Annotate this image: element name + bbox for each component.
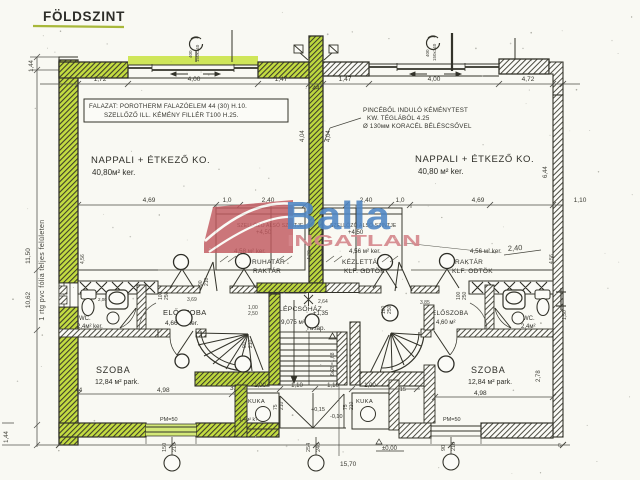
svg-text:44: 44 [75, 387, 83, 394]
svg-text:90: 90 [441, 445, 447, 451]
svg-text:4,00: 4,00 [428, 76, 441, 83]
svg-text:1 rtg pvc fólia teljes felület: 1 rtg pvc fólia teljes felületen [39, 219, 46, 320]
svg-text:210: 210 [279, 401, 285, 410]
svg-text:150x140: 150x140 [432, 43, 437, 61]
svg-text:1,0: 1,0 [395, 197, 404, 204]
svg-text:6: 6 [558, 443, 561, 449]
svg-text:400: 400 [188, 50, 193, 58]
svg-text:4,98: 4,98 [157, 387, 170, 394]
svg-text:2,78: 2,78 [536, 370, 542, 382]
svg-text:KLF. ODTÖK: KLF. ODTÖK [452, 267, 493, 275]
svg-text:4,60 м²: 4,60 м² [436, 320, 455, 326]
svg-text:NAPPALI + ÉTKEZŐ KO.: NAPPALI + ÉTKEZŐ KO. [91, 155, 210, 166]
svg-text:KUKA: KUKA [356, 399, 373, 405]
svg-text:FÖLDSZINT: FÖLDSZINT [43, 9, 125, 24]
svg-text:2,50: 2,50 [248, 311, 258, 317]
svg-text:1,47: 1,47 [339, 76, 352, 83]
svg-text:1,4м² k?: 1,4м² k? [239, 417, 258, 423]
svg-text:12,84 м² park.: 12,84 м² park. [468, 379, 512, 386]
svg-text:250: 250 [164, 291, 170, 300]
svg-text:210: 210 [248, 339, 254, 348]
svg-text:4,30: 4,30 [307, 250, 313, 260]
svg-text:1,10: 1,10 [327, 383, 339, 389]
svg-text:PM=50: PM=50 [160, 417, 178, 423]
svg-text:1,10: 1,10 [574, 197, 587, 204]
svg-text:2,40: 2,40 [508, 243, 523, 253]
svg-text:INGATLAN: INGATLAN [287, 233, 421, 250]
svg-text:Ø 130мм KORACÉL BÉLÉSCSŐVEL: Ø 130мм KORACÉL BÉLÉSCSŐVEL [363, 123, 472, 130]
svg-text:PM=50: PM=50 [443, 417, 461, 423]
svg-text:KW. TÉGLÁBÓL 4.25: KW. TÉGLÁBÓL 4.25 [367, 115, 430, 122]
svg-text:4,72: 4,72 [522, 76, 535, 83]
svg-text:SZOBA: SZOBA [471, 365, 506, 375]
svg-text:SZELLŐZŐ ILL. KÉMÉNY FILLÉR T1: SZELLŐZŐ ILL. KÉMÉNY FILLÉR T100 H.25. [104, 112, 239, 119]
svg-text:1,00: 1,00 [254, 383, 266, 389]
svg-text:40,80м² ker.: 40,80м² ker. [92, 168, 135, 177]
svg-text:WC.: WC. [79, 316, 91, 322]
svg-text:6,44: 6,44 [543, 166, 549, 178]
svg-text:11,50: 11,50 [25, 248, 32, 264]
svg-text:RUHATÁR: RUHATÁR [252, 257, 285, 266]
svg-text:4,00: 4,00 [188, 76, 201, 83]
svg-text:NAPPALI + ÉTKEZŐ KO.: NAPPALI + ÉTKEZŐ KO. [415, 154, 534, 165]
svg-text:RAKTÁR: RAKTÁR [253, 266, 281, 275]
svg-text:PINCÉBŐL INDULÓ KÉMÉNYTEST: PINCÉBŐL INDULÓ KÉMÉNYTEST [363, 107, 468, 114]
svg-text:4,56: 4,56 [80, 254, 86, 264]
svg-text:1,44: 1,44 [4, 431, 10, 443]
svg-text:4,56 м² ker.: 4,56 м² ker. [470, 248, 502, 255]
svg-text:150x140: 150x140 [195, 44, 200, 62]
svg-text:+0,15: +0,15 [311, 407, 325, 413]
svg-text:KÉZLETTÁR: KÉZLETTÁR [342, 257, 382, 266]
svg-text:15,70: 15,70 [340, 461, 357, 468]
svg-text:4,98: 4,98 [474, 390, 487, 397]
svg-text:150: 150 [162, 443, 168, 452]
svg-text:2,00: 2,00 [98, 297, 107, 302]
svg-text:4,69: 4,69 [143, 197, 156, 204]
svg-text:250: 250 [462, 291, 468, 300]
svg-text:210: 210 [451, 442, 457, 451]
svg-text:4,56: 4,56 [549, 254, 555, 264]
svg-text:400: 400 [425, 49, 430, 57]
svg-text:9,075 м²: 9,075 м² [281, 319, 305, 326]
svg-text:RAKTÁR: RAKTÁR [455, 257, 483, 266]
svg-text:4,04: 4,04 [300, 130, 306, 142]
svg-text:Balla: Balla [285, 195, 390, 238]
svg-text:10,62: 10,62 [25, 291, 32, 308]
svg-text:250: 250 [387, 305, 393, 314]
svg-text:4,69: 4,69 [472, 197, 485, 204]
svg-text:1,10: 1,10 [291, 383, 303, 389]
svg-text:4,04: 4,04 [326, 130, 332, 142]
svg-text:254: 254 [306, 443, 312, 452]
svg-text:KLF. GDTÖK: KLF. GDTÖK [344, 267, 385, 275]
svg-text:FALAZAT: POROTHERM FALAZÓELEM: FALAZAT: POROTHERM FALAZÓELEM 44 (30) H.… [89, 103, 247, 110]
svg-text:WC.: WC. [523, 316, 535, 322]
svg-text:3,69: 3,69 [187, 297, 197, 303]
svg-text:44: 44 [312, 85, 320, 92]
svg-text:1,44: 1,44 [29, 60, 35, 72]
svg-text:1,00: 1,00 [364, 383, 376, 389]
svg-text:1,47: 1,47 [275, 76, 288, 83]
svg-text:SZOBA: SZOBA [96, 365, 131, 375]
svg-text:1,50: 1,50 [562, 310, 568, 320]
svg-text:1,0: 1,0 [222, 197, 231, 204]
svg-text:ELŐSZOBA: ELŐSZOBA [432, 308, 469, 317]
svg-text:40,80 м² ker.: 40,80 м² ker. [418, 167, 464, 176]
svg-text:6x28=1,68: 6x28=1,68 [330, 352, 336, 376]
svg-text:2,64: 2,64 [318, 299, 328, 305]
svg-text:1,72: 1,72 [94, 76, 107, 83]
svg-text:KUKA: KUKA [248, 399, 265, 405]
svg-text:210: 210 [204, 277, 210, 286]
svg-text:12,84 м² park.: 12,84 м² park. [95, 379, 139, 386]
